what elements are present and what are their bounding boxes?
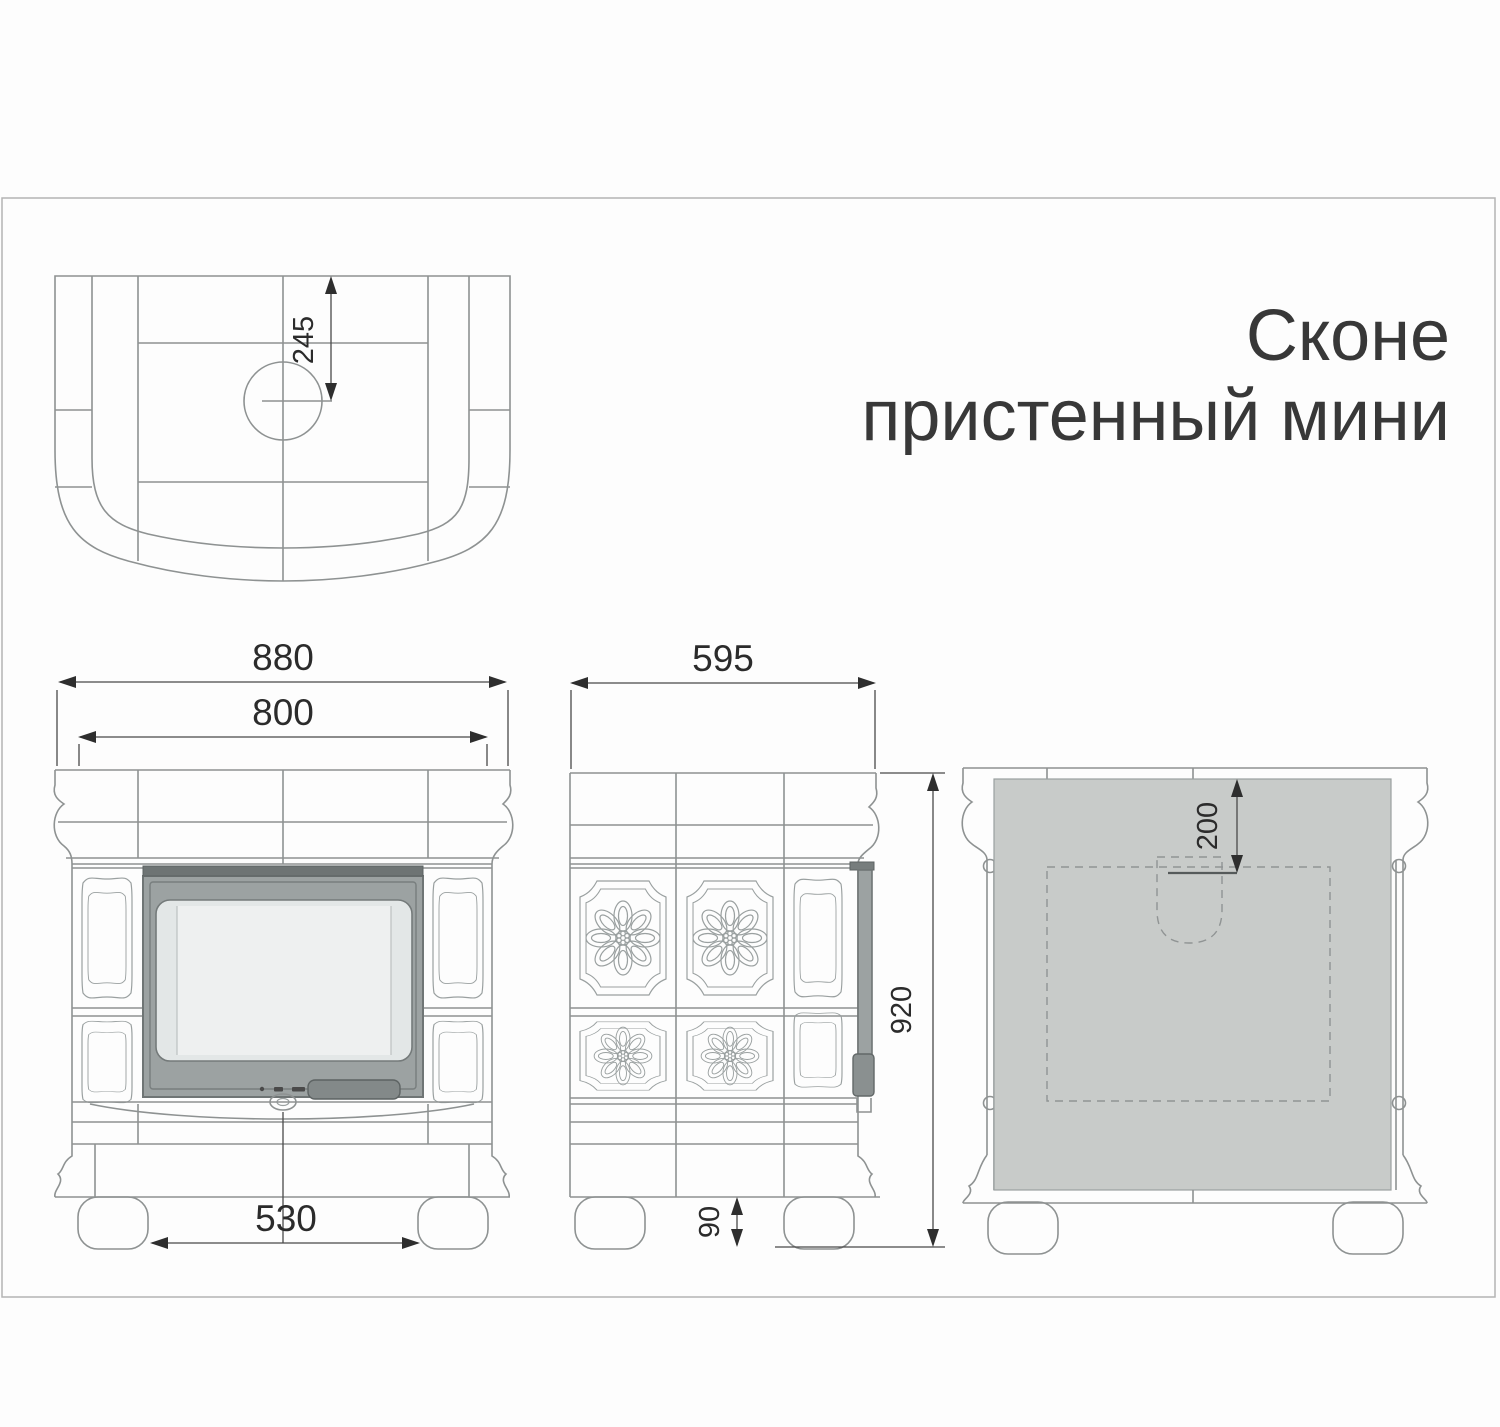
door-vent-slot: [274, 1087, 283, 1092]
door-handle-plate: [308, 1080, 400, 1099]
side-body: [570, 773, 858, 1197]
door-edge-bar: [858, 870, 872, 1062]
front-cornice: [54, 770, 513, 864]
door-indicator-dot: [260, 1087, 264, 1091]
front-right-foot: [418, 1197, 488, 1249]
door-edge-handle: [853, 1054, 874, 1096]
dim-label-595: 595: [692, 638, 754, 679]
dim-label-245: 245: [288, 316, 320, 364]
side-front-foot: [784, 1197, 854, 1249]
door-edge-bracket: [857, 1098, 871, 1112]
front-left-foot: [78, 1197, 148, 1249]
door-glass-center: [177, 906, 391, 1055]
dim-body-width-800: 800: [78, 692, 488, 766]
dim-label-200: 200: [1192, 802, 1224, 850]
dim-flue-offset-245: 245: [288, 276, 337, 401]
dim-foot-height-90: 90: [694, 1197, 743, 1247]
side-cornice: [570, 773, 879, 864]
dim-label-800: 800: [252, 692, 314, 733]
door-vent-slot2: [292, 1087, 305, 1092]
back-right-foot: [1333, 1202, 1403, 1254]
drawing-sheet: Сконе пристенный мини: [0, 0, 1500, 1427]
side-cartouche-tiles: [794, 879, 842, 1087]
dim-label-880: 880: [252, 637, 314, 678]
fire-door: [143, 866, 423, 1110]
side-view: 595: [570, 638, 945, 1249]
top-view: 245: [55, 276, 510, 581]
dim-label-530: 530: [255, 1198, 317, 1239]
dim-feet-span-530: 530: [150, 1112, 420, 1249]
dim-label-920: 920: [886, 986, 918, 1034]
side-back-foot: [575, 1197, 645, 1249]
plan-inner-outline: [92, 276, 469, 548]
front-view: 880 800: [54, 637, 513, 1249]
stove-drawing: 245 880 800: [0, 0, 1500, 1427]
back-right-cornice: [1403, 768, 1428, 860]
dim-depth-595: 595: [570, 638, 876, 769]
dim-label-90: 90: [694, 1206, 726, 1238]
door-top-strip: [143, 866, 423, 876]
back-left-cornice: [962, 768, 987, 860]
side-door-edge: [850, 862, 874, 1112]
back-left-foot: [988, 1202, 1058, 1254]
back-view: 200: [962, 768, 1428, 1254]
